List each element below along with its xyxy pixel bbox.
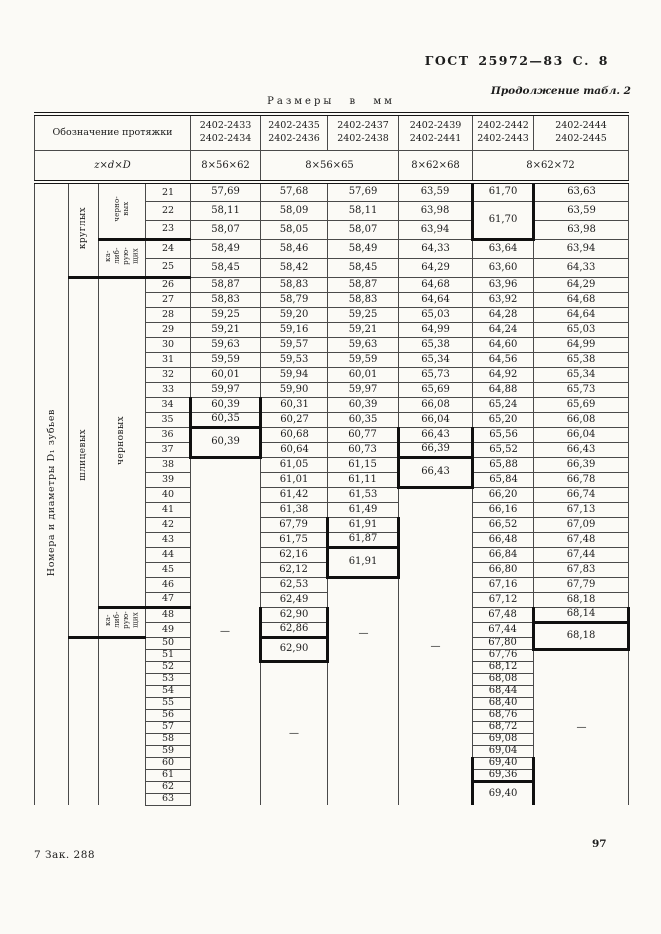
diameter-value: 58,83 [328, 292, 399, 307]
diameter-value: 63,63 [534, 182, 629, 201]
diameter-value: 65,56 [473, 427, 534, 442]
designation-line: 2402-2442 [473, 120, 533, 132]
diameter-value: 58,09 [261, 201, 328, 220]
diameter-value: 65,52 [473, 442, 534, 457]
tooth-type-group [99, 637, 146, 805]
broach-table: Обозначение протяжки2402-24332402-243424… [34, 112, 630, 806]
diameter-value: 66,43 [534, 442, 629, 457]
diameter-value: 60,77 [328, 427, 399, 442]
diameter-value: 58,49 [328, 239, 399, 258]
diameter-value: 65,69 [399, 382, 473, 397]
diameter-value: 64,64 [399, 292, 473, 307]
diameter-value: 60,64 [261, 442, 328, 457]
diameter-value: 67,83 [534, 562, 629, 577]
column-header-designation: 2402-24392402-2441 [399, 114, 473, 150]
diameter-value: 60,68 [261, 427, 328, 442]
diameter-value: 68,12 [473, 661, 534, 673]
diameter-value: 63,96 [473, 277, 534, 292]
column-header-designation: 2402-24372402-2438 [328, 114, 399, 150]
diameter-value: 62,12 [261, 562, 328, 577]
tooth-type-group-text: ка- либ- рую- щих [104, 247, 140, 265]
diameter-value: 57,69 [328, 182, 399, 201]
table-row: Номера и диаметры D₁ зубьевкруглыхчерно-… [35, 182, 629, 201]
diameter-value: 58,87 [191, 277, 261, 292]
tooth-type-group: черновых [99, 277, 146, 607]
row-number: 33 [146, 382, 191, 397]
diameter-value: 66,16 [473, 502, 534, 517]
designation-line: 2402-2439 [399, 120, 472, 132]
diameter-value: 64,28 [473, 307, 534, 322]
row-number: 55 [146, 697, 191, 709]
diameter-value: 63,59 [534, 201, 629, 220]
designation-line: 2402-2445 [534, 133, 628, 145]
diameter-value: 69,36 [473, 769, 534, 781]
row-number: 21 [146, 182, 191, 201]
diameter-value: 66,20 [473, 487, 534, 502]
designation-line: 2402-2437 [328, 120, 398, 132]
row-number: 22 [146, 201, 191, 220]
header-row-sizes: z×d×D8×56×628×56×658×62×688×62×72 [35, 150, 629, 182]
diameter-value: 64,99 [534, 337, 629, 352]
row-number: 56 [146, 709, 191, 721]
size-cell: 8×56×65 [261, 150, 399, 182]
tooth-type-group: ка- либ- рую- щих [99, 607, 146, 637]
table-body: Номера и диаметры D₁ зубьевкруглыхчерно-… [35, 182, 629, 805]
diameter-value: 58,11 [191, 201, 261, 220]
row-number: 30 [146, 337, 191, 352]
diameter-value: 59,20 [261, 307, 328, 322]
diameter-value: 65,20 [473, 412, 534, 427]
diameter-value: 61,53 [328, 487, 399, 502]
diameter-value: 59,97 [328, 382, 399, 397]
diameter-value: 66,04 [399, 412, 473, 427]
designation-line: 2402-2434 [191, 133, 260, 145]
diameter-value: 66,48 [473, 532, 534, 547]
row-number: 27 [146, 292, 191, 307]
row-number: 58 [146, 733, 191, 745]
diameter-value: 66,43 [399, 457, 473, 487]
diameter-value: 59,21 [191, 322, 261, 337]
table-stub-header: Обозначение протяжки [35, 114, 191, 150]
diameter-value: 58,46 [261, 239, 328, 258]
diameter-value: 68,18 [534, 592, 629, 607]
diameter-value: 62,86 [261, 622, 328, 637]
row-number: 40 [146, 487, 191, 502]
diameter-value: 65,24 [473, 397, 534, 412]
diameter-value: 66,80 [473, 562, 534, 577]
diameter-value: 66,74 [534, 487, 629, 502]
diameter-value: 61,70 [473, 182, 534, 201]
diameter-value: 60,01 [328, 367, 399, 382]
tooth-shape-group-text: шлицевых [78, 429, 89, 481]
designation-line: 2402-2435 [261, 120, 327, 132]
row-axis-label: Номера и диаметры D₁ зубьев [35, 182, 69, 805]
row-number: 41 [146, 502, 191, 517]
row-number: 39 [146, 472, 191, 487]
diameter-value: 62,16 [261, 547, 328, 562]
diameter-value: 59,25 [191, 307, 261, 322]
row-number: 51 [146, 649, 191, 661]
row-number: 38 [146, 457, 191, 472]
diameter-value: 64,99 [399, 322, 473, 337]
diameter-value: 58,87 [328, 277, 399, 292]
diameter-value: 67,80 [473, 637, 534, 649]
diameter-value: 61,87 [328, 532, 399, 547]
diameter-value: 67,48 [534, 532, 629, 547]
diameter-value: 67,09 [534, 517, 629, 532]
diameter-value: 61,11 [328, 472, 399, 487]
diameter-value: 59,25 [328, 307, 399, 322]
diameter-value: 67,79 [534, 577, 629, 592]
tooth-shape-group-text: круглых [78, 207, 89, 249]
tooth-type-group-text: ка- либ- рую- щих [104, 611, 140, 629]
diameter-value: 58,83 [261, 277, 328, 292]
diameter-value: 64,33 [399, 239, 473, 258]
diameter-value: 59,57 [261, 337, 328, 352]
row-number: 53 [146, 673, 191, 685]
diameter-value: 66,43 [399, 427, 473, 442]
no-value-dash: — [191, 457, 261, 805]
diameter-value: 63,98 [399, 201, 473, 220]
diameter-value: 68,18 [534, 622, 629, 649]
diameter-value: 64,29 [534, 277, 629, 292]
diameter-value: 64,88 [473, 382, 534, 397]
row-number: 36 [146, 427, 191, 442]
row-number: 31 [146, 352, 191, 367]
diameter-value: 60,39 [191, 397, 261, 412]
diameter-value: 64,60 [473, 337, 534, 352]
diameter-value: 66,84 [473, 547, 534, 562]
page-number: 97 [592, 838, 607, 850]
no-value-dash: — [261, 661, 328, 805]
tooth-shape-group: круглых [69, 182, 99, 277]
diameter-value: 64,56 [473, 352, 534, 367]
row-number: 50 [146, 637, 191, 649]
diameter-value: 61,49 [328, 502, 399, 517]
diameter-value: 62,90 [261, 607, 328, 622]
diameter-value: 68,40 [473, 697, 534, 709]
diameter-value: 67,79 [261, 517, 328, 532]
diameter-value: 68,44 [473, 685, 534, 697]
diameter-value: 60,39 [191, 427, 261, 457]
diameter-value: 64,68 [399, 277, 473, 292]
row-number: 47 [146, 592, 191, 607]
diameter-value: 65,34 [534, 367, 629, 382]
diameter-value: 61,70 [473, 201, 534, 239]
row-number: 32 [146, 367, 191, 382]
diameter-value: 58,05 [261, 220, 328, 239]
row-number: 49 [146, 622, 191, 637]
size-cell: 8×62×72 [473, 150, 629, 182]
diameter-value: 63,94 [399, 220, 473, 239]
row-number: 52 [146, 661, 191, 673]
row-number: 45 [146, 562, 191, 577]
row-number: 63 [146, 793, 191, 805]
diameter-value: 63,92 [473, 292, 534, 307]
row-number: 24 [146, 239, 191, 258]
column-header-designation: 2402-24352402-2436 [261, 114, 328, 150]
row-number: 57 [146, 721, 191, 733]
row-number: 25 [146, 258, 191, 277]
diameter-value: 63,94 [534, 239, 629, 258]
no-value-dash: — [399, 487, 473, 805]
diameter-value: 57,69 [191, 182, 261, 201]
diameter-value: 57,68 [261, 182, 328, 201]
scanned-gost-page: { "page": { "gost_header": "ГОСТ 25972—8… [0, 0, 661, 934]
diameter-value: 65,84 [473, 472, 534, 487]
tooth-type-group-text: черно- вых [113, 196, 131, 222]
diameter-value: 67,44 [473, 622, 534, 637]
diameter-value: 61,38 [261, 502, 328, 517]
row-number: 62 [146, 781, 191, 793]
row-number: 44 [146, 547, 191, 562]
diameter-value: 59,63 [191, 337, 261, 352]
diameter-value: 69,40 [473, 781, 534, 805]
diameter-value: 61,01 [261, 472, 328, 487]
diameter-value: 58,45 [191, 258, 261, 277]
diameter-value: 69,04 [473, 745, 534, 757]
diameter-value: 59,53 [261, 352, 328, 367]
print-order-note: 7 Зак. 288 [34, 849, 95, 861]
diameter-value: 64,92 [473, 367, 534, 382]
diameter-value: 60,73 [328, 442, 399, 457]
tooth-shape-group: шлицевых [69, 277, 99, 637]
row-number: 60 [146, 757, 191, 769]
diameter-value: 67,12 [473, 592, 534, 607]
diameter-value: 61,75 [261, 532, 328, 547]
diameter-value: 58,45 [328, 258, 399, 277]
row-number: 28 [146, 307, 191, 322]
diameter-value: 59,59 [191, 352, 261, 367]
row-number: 37 [146, 442, 191, 457]
diameter-value: 60,35 [191, 412, 261, 427]
diameter-value: 59,97 [191, 382, 261, 397]
diameter-value: 64,68 [534, 292, 629, 307]
diameter-value: 65,73 [534, 382, 629, 397]
no-value-dash: — [534, 649, 629, 805]
row-number: 26 [146, 277, 191, 292]
diameter-value: 64,64 [534, 307, 629, 322]
diameter-value: 63,60 [473, 258, 534, 277]
row-number: 43 [146, 532, 191, 547]
row-number: 59 [146, 745, 191, 757]
diameter-value: 69,08 [473, 733, 534, 745]
diameter-value: 65,88 [473, 457, 534, 472]
diameter-value: 66,39 [399, 442, 473, 457]
diameter-value: 61,42 [261, 487, 328, 502]
diameter-value: 60,01 [191, 367, 261, 382]
diameter-value: 61,91 [328, 547, 399, 577]
diameter-value: 65,34 [399, 352, 473, 367]
diameter-value: 60,27 [261, 412, 328, 427]
tooth-shape-group [69, 637, 99, 805]
diameter-value: 64,29 [399, 258, 473, 277]
tooth-type-group: черно- вых [99, 182, 146, 239]
designation-line: 2402-2441 [399, 133, 472, 145]
diameter-value: 60,31 [261, 397, 328, 412]
diameter-value: 68,08 [473, 673, 534, 685]
row-number: 35 [146, 412, 191, 427]
no-value-dash: — [328, 577, 399, 805]
size-cell: 8×62×68 [399, 150, 473, 182]
diameter-value: 58,83 [191, 292, 261, 307]
units-note: Размеры в мм [34, 96, 628, 107]
diameter-value: 58,07 [191, 220, 261, 239]
diameter-value: 58,42 [261, 258, 328, 277]
diameter-value: 67,76 [473, 649, 534, 661]
diameter-value: 66,52 [473, 517, 534, 532]
tooth-type-group-text: черновых [116, 416, 127, 465]
diameter-value: 60,39 [328, 397, 399, 412]
diameter-value: 59,59 [328, 352, 399, 367]
diameter-value: 66,08 [534, 412, 629, 427]
diameter-value: 66,08 [399, 397, 473, 412]
diameter-value: 61,05 [261, 457, 328, 472]
diameter-value: 59,16 [261, 322, 328, 337]
diameter-value: 67,13 [534, 502, 629, 517]
diameter-value: 59,94 [261, 367, 328, 382]
diameter-value: 61,15 [328, 457, 399, 472]
tooth-type-group: ка- либ- рую- щих [99, 239, 146, 277]
diameter-value: 67,44 [534, 547, 629, 562]
designation-line: 2402-2438 [328, 133, 398, 145]
param-label-cell: z×d×D [35, 150, 191, 182]
size-cell: 8×56×62 [191, 150, 261, 182]
column-header-designation: 2402-24442402-2445 [534, 114, 629, 150]
diameter-value: 64,24 [473, 322, 534, 337]
diameter-value: 58,49 [191, 239, 261, 258]
row-number: 48 [146, 607, 191, 622]
diameter-value: 59,21 [328, 322, 399, 337]
designation-line: 2402-2443 [473, 133, 533, 145]
diameter-value: 61,91 [328, 517, 399, 532]
document-header: ГОСТ 25972—83 С. 8 [425, 53, 609, 68]
diameter-value: 63,64 [473, 239, 534, 258]
diameter-value: 62,53 [261, 577, 328, 592]
designation-line: 2402-2444 [534, 120, 628, 132]
diameter-value: 65,73 [399, 367, 473, 382]
row-number: 61 [146, 769, 191, 781]
diameter-value: 68,14 [534, 607, 629, 622]
designation-line: 2402-2436 [261, 133, 327, 145]
row-number: 34 [146, 397, 191, 412]
diameter-value: 68,72 [473, 721, 534, 733]
diameter-value: 63,59 [399, 182, 473, 201]
diameter-value: 67,16 [473, 577, 534, 592]
table-head: Обозначение протяжки2402-24332402-243424… [35, 114, 629, 182]
header-row-designations: Обозначение протяжки2402-24332402-243424… [35, 114, 629, 150]
diameter-value: 65,38 [534, 352, 629, 367]
row-number: 42 [146, 517, 191, 532]
diameter-value: 65,03 [534, 322, 629, 337]
diameter-value: 58,11 [328, 201, 399, 220]
diameter-value: 58,79 [261, 292, 328, 307]
row-number: 54 [146, 685, 191, 697]
row-number: 23 [146, 220, 191, 239]
diameter-value: 64,33 [534, 258, 629, 277]
row-number: 29 [146, 322, 191, 337]
diameter-value: 66,04 [534, 427, 629, 442]
diameter-value: 66,39 [534, 457, 629, 472]
diameter-value: 59,90 [261, 382, 328, 397]
diameter-value: 68,76 [473, 709, 534, 721]
diameter-value: 66,78 [534, 472, 629, 487]
diameter-value: 63,98 [534, 220, 629, 239]
diameter-value: 58,07 [328, 220, 399, 239]
diameter-value: 65,38 [399, 337, 473, 352]
diameter-value: 60,35 [328, 412, 399, 427]
diameter-value: 62,90 [261, 637, 328, 661]
diameter-value: 65,03 [399, 307, 473, 322]
column-header-designation: 2402-24422402-2443 [473, 114, 534, 150]
diameter-value: 65,69 [534, 397, 629, 412]
row-number: 46 [146, 577, 191, 592]
diameter-value: 62,49 [261, 592, 328, 607]
diameter-value: 69,40 [473, 757, 534, 769]
diameter-value: 67,48 [473, 607, 534, 622]
table-row: шлицевыхчерновых2658,8758,8358,8764,6863… [35, 277, 629, 292]
table-row: ка- либ- рую- щих2458,4958,4658,4964,336… [35, 239, 629, 258]
row-axis-label-text: Номера и диаметры D₁ зубьев [46, 409, 58, 576]
designation-line: 2402-2433 [191, 120, 260, 132]
diameter-value: 59,63 [328, 337, 399, 352]
column-header-designation: 2402-24332402-2434 [191, 114, 261, 150]
